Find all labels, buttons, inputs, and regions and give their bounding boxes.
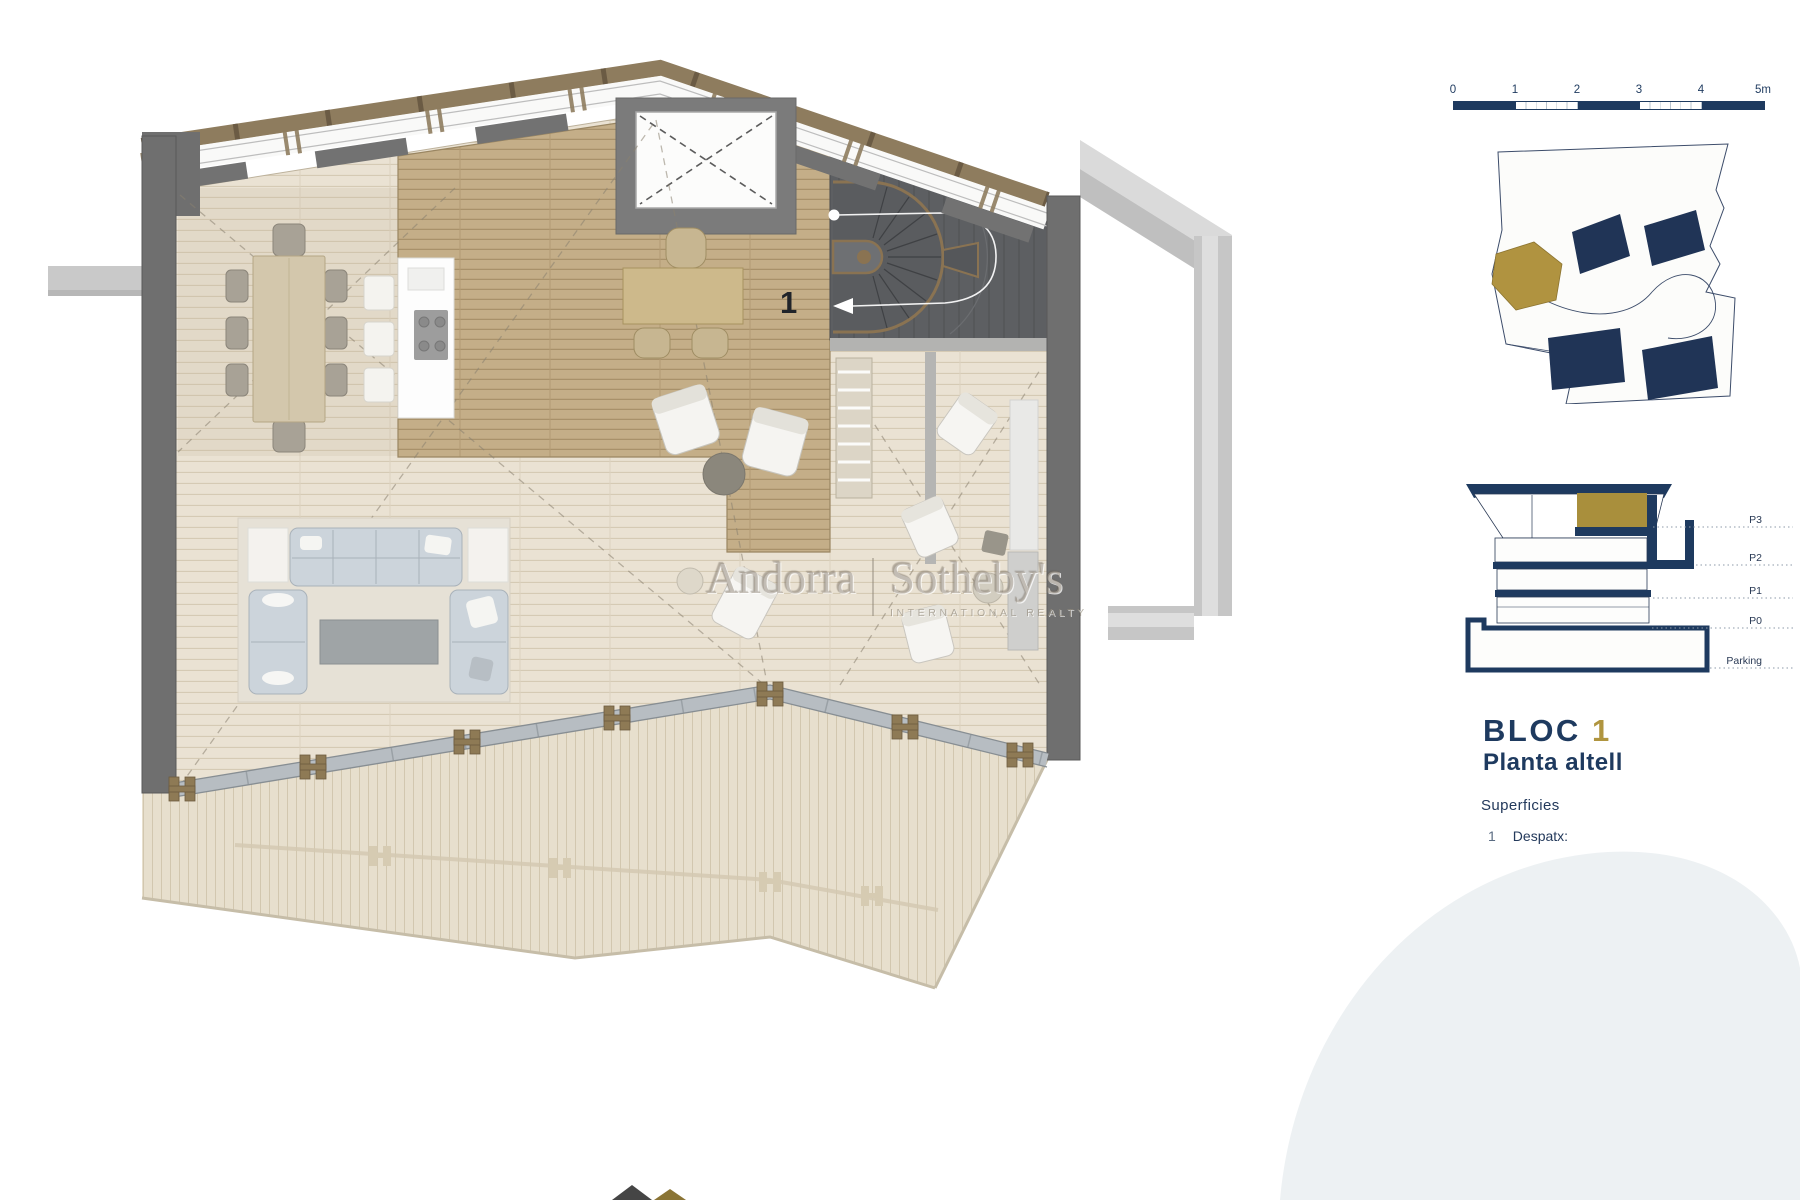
block-number: 1: [1592, 713, 1612, 748]
desk-chair: [692, 328, 728, 358]
site-building: [1548, 328, 1625, 390]
scale-bar-labels: 0 1 2 3 4 5m: [1453, 84, 1765, 97]
block-title-text: BLOC: [1483, 713, 1581, 748]
floor-label-p2: P2: [1749, 552, 1762, 564]
scale-bar: 0 1 2 3 4 5m: [1453, 84, 1765, 110]
plan-sheet: 1 Andorra Sotheby's INTERNATIONAL REALTY…: [0, 0, 1800, 1200]
scale-bar-ruler: [1453, 101, 1765, 110]
block-title: BLOC 1: [1483, 714, 1623, 748]
floor-label-p1: P1: [1749, 585, 1762, 597]
desk: [623, 268, 743, 324]
wall-cabinet: [1010, 400, 1038, 550]
scale-label: 4: [1698, 84, 1704, 96]
stair-newel: [857, 250, 871, 264]
legend-item: 1 Despatx:: [1481, 828, 1568, 844]
round-table: [973, 573, 1003, 603]
scale-label: 2: [1574, 84, 1580, 96]
legend-item-label: Despatx:: [1513, 828, 1568, 844]
title-block: BLOC 1 Planta altell: [1483, 714, 1623, 777]
legend-heading: Superficies: [1481, 797, 1568, 814]
elevator-shaft: [616, 98, 796, 234]
floor-label-p0: P0: [1749, 615, 1762, 627]
island-stools: [364, 276, 394, 402]
bottom-edge-marks: [612, 1185, 686, 1200]
scale-label: 5m: [1755, 84, 1771, 96]
left-wall: [142, 136, 176, 793]
sink: [408, 268, 444, 290]
site-plan-map: [1472, 142, 1748, 404]
sofa-set: [238, 518, 510, 702]
coffee-table: [320, 620, 438, 664]
section-altell-highlight: [1577, 493, 1647, 527]
desk-chair: [666, 228, 706, 268]
route-start-dot: [829, 210, 840, 221]
building-section: P3 P2 P1 P0 Parking: [1460, 470, 1800, 685]
side-table: [468, 528, 508, 582]
round-table: [677, 568, 703, 594]
room-number-label: 1: [780, 285, 797, 320]
legend: Superficies 1 Despatx:: [1481, 797, 1568, 844]
legend-item-number: 1: [1481, 828, 1496, 844]
ottoman: [703, 453, 745, 495]
side-table: [248, 528, 288, 582]
floor-label-parking: Parking: [1726, 655, 1762, 667]
shelving-unit: [836, 358, 872, 498]
desk-chair: [634, 328, 670, 358]
kitchen-island: [364, 258, 454, 418]
wall-cabinet: [1008, 552, 1038, 650]
plan-subtitle: Planta altell: [1483, 749, 1623, 777]
scale-label: 1: [1512, 84, 1518, 96]
right-wall: [1047, 196, 1080, 760]
background-blob: [1280, 852, 1800, 1200]
scale-label: 0: [1450, 84, 1456, 96]
floor-label-p3: P3: [1749, 514, 1762, 526]
scale-label: 3: [1636, 84, 1642, 96]
